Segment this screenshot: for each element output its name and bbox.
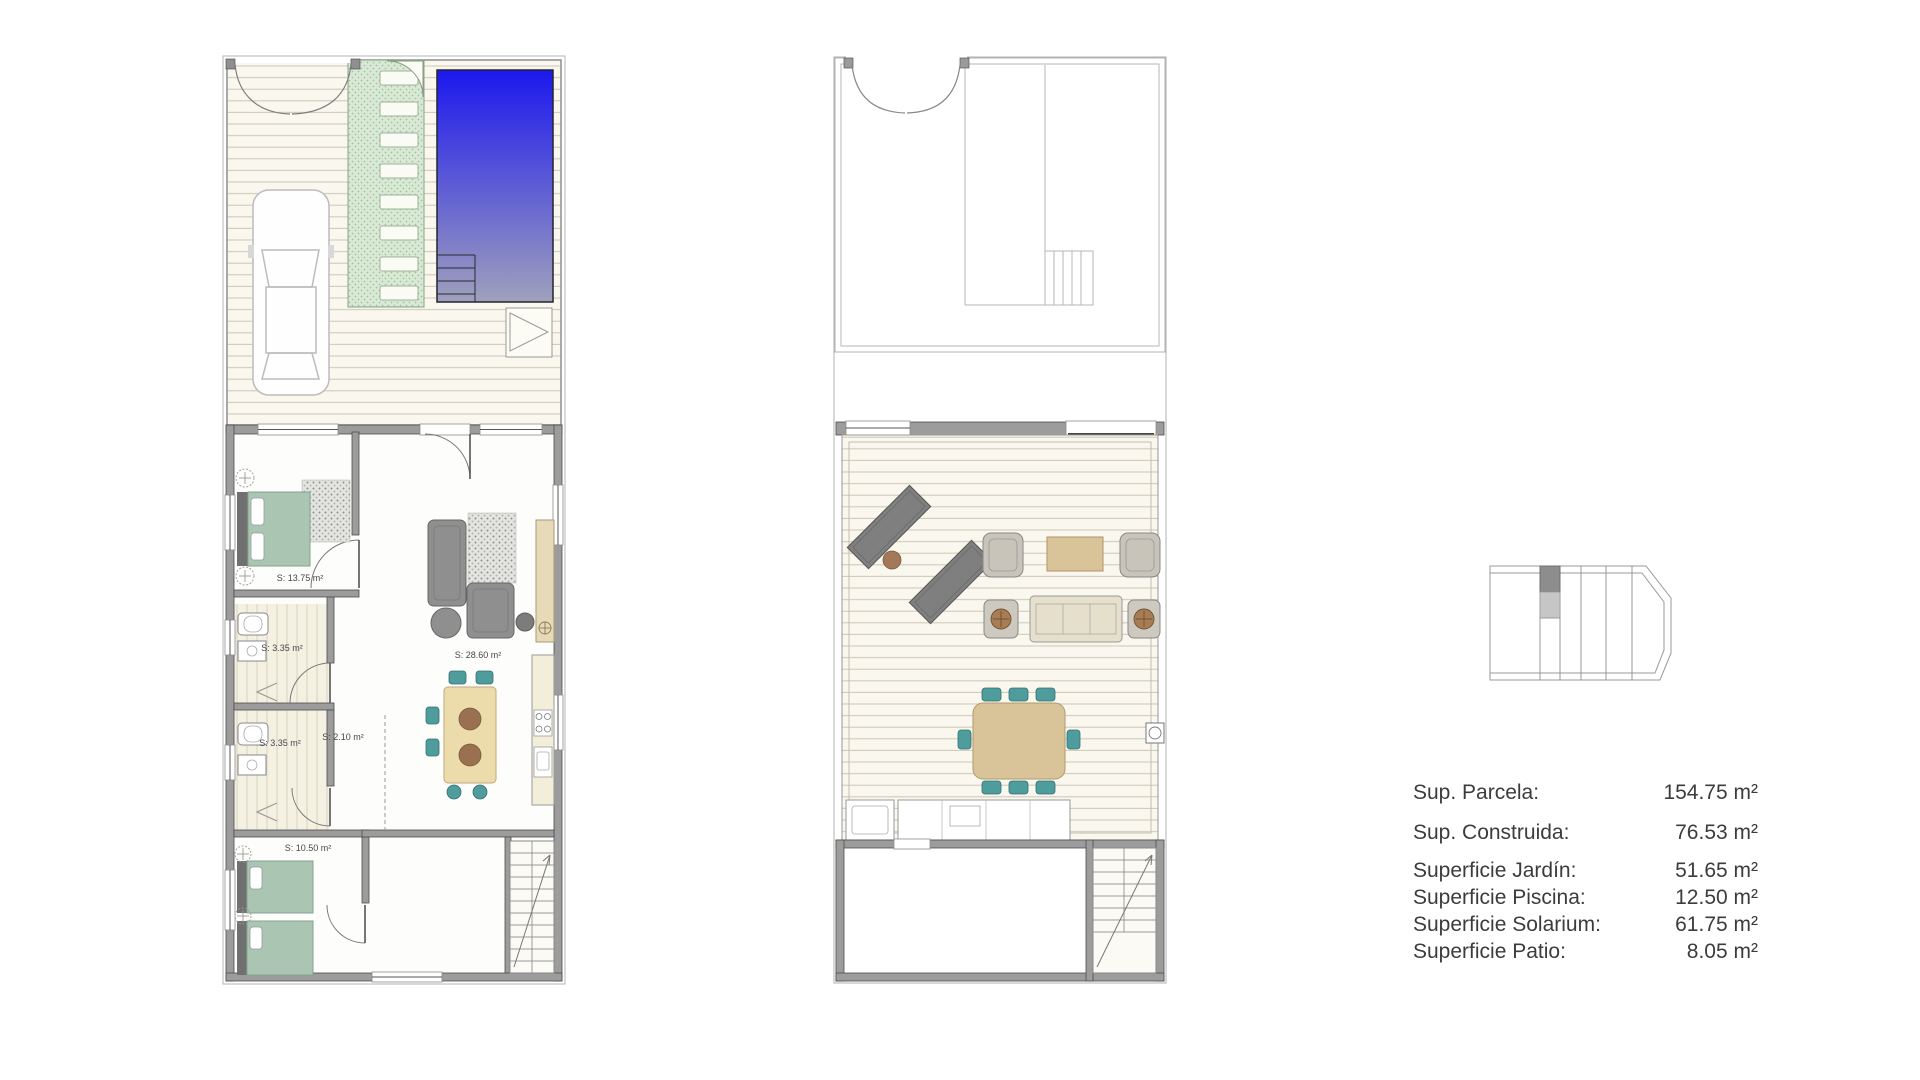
area-value: 154.75 m²	[1663, 779, 1758, 806]
area-label: Superficie Piscina:	[1413, 884, 1586, 911]
side-table	[516, 613, 534, 631]
lawn-strip	[348, 60, 424, 307]
staircase	[1093, 848, 1156, 973]
area-value: 12.50 m²	[1675, 884, 1758, 911]
area-value: 8.05 m²	[1687, 938, 1758, 965]
loveseat	[467, 583, 514, 638]
floorplan-sheet: S: 13.75 m² S: 3.35 m² S: 3.35 m² S: 2.1…	[0, 0, 1920, 1080]
kitchen-counter	[532, 655, 554, 805]
patio-door	[894, 839, 930, 849]
side-table	[883, 551, 901, 569]
bedroom-1-area-label: S: 13.75 m²	[277, 573, 324, 583]
area-label: Superficie Jardín:	[1413, 857, 1576, 884]
area-value: 76.53 m²	[1675, 819, 1758, 846]
area-label: Sup. Construida:	[1413, 819, 1569, 846]
area-label: Sup. Parcela:	[1413, 779, 1539, 806]
roof-void	[835, 58, 1165, 352]
area-value: 51.65 m²	[1675, 857, 1758, 884]
kitchenette	[846, 800, 1070, 840]
area-row-parcela: Sup. Parcela: 154.75 m²	[1413, 779, 1758, 806]
hallway-area-label: S: 2.10 m²	[322, 732, 364, 742]
staircase	[510, 841, 554, 973]
coffee-table	[1047, 537, 1103, 571]
bedroom-2-area-label: S: 10.50 m²	[285, 843, 332, 853]
area-row-construida: Sup. Construida: 76.53 m²	[1413, 819, 1758, 846]
area-row-solarium: Superficie Solarium: 61.75 m²	[1413, 911, 1758, 938]
solarium-walls	[836, 421, 1164, 436]
area-value: 61.75 m²	[1675, 911, 1758, 938]
car	[248, 190, 334, 395]
area-row-piscina: Superficie Piscina: 12.50 m²	[1413, 884, 1758, 911]
ground-floor-plan: S: 13.75 m² S: 3.35 m² S: 3.35 m² S: 2.1…	[222, 55, 566, 985]
stair-detail-plan	[1484, 558, 1679, 693]
areas-table: Sup. Parcela: 154.75 m² Sup. Construida:…	[1413, 779, 1758, 965]
area-label: Superficie Solarium:	[1413, 911, 1601, 938]
solarium-floor-plan	[832, 55, 1168, 985]
pouf	[431, 608, 461, 638]
dining-table	[444, 687, 496, 783]
swimming-pool	[437, 70, 553, 302]
sofa	[1030, 596, 1122, 642]
area-label: Superficie Patio:	[1413, 938, 1566, 965]
living-area-label: S: 28.60 m²	[455, 650, 502, 660]
headboard	[237, 492, 248, 566]
bathroom-2-area-label: S: 3.35 m²	[259, 738, 301, 748]
area-row-jardin: Superficie Jardín: 51.65 m²	[1413, 857, 1758, 884]
rug	[468, 513, 516, 583]
area-row-patio: Superficie Patio: 8.05 m²	[1413, 938, 1758, 965]
outdoor-shower-symbol	[506, 308, 552, 357]
sink	[238, 755, 266, 775]
stair-landing-dark	[1540, 566, 1560, 592]
bathroom-1-area-label: S: 3.35 m²	[261, 643, 303, 653]
dining-table	[973, 703, 1065, 779]
driveway-gate	[844, 56, 969, 113]
stair-landing-light	[1540, 592, 1560, 618]
